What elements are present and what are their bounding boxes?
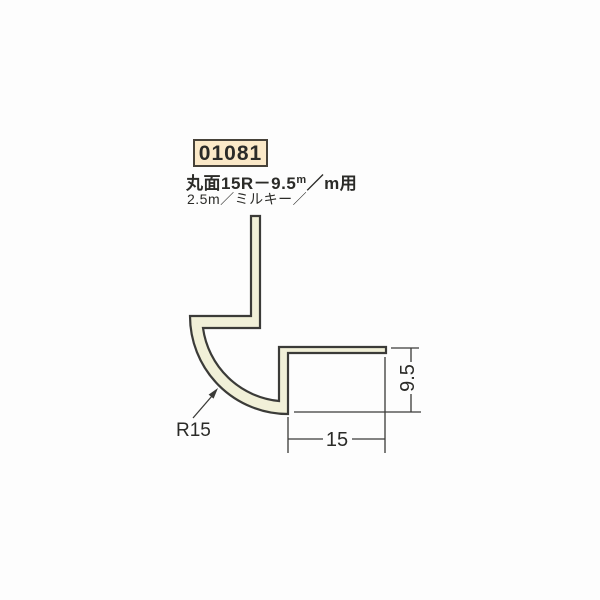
radius-arrow-line — [193, 396, 212, 418]
technical-drawing: 15 9.5 R15 — [0, 0, 600, 600]
dim-radius-label: R15 — [176, 420, 211, 441]
dim-radius: R15 — [176, 388, 218, 441]
dim-height: 9.5 — [294, 348, 421, 412]
catalog-page: 01081 丸面15R－9.5m／m用 2.5m／ミルキー／ 15 9.5 R1… — [0, 0, 600, 600]
profile-cross-section — [190, 216, 386, 414]
dim-width: 15 — [288, 357, 385, 453]
dim-height-label: 9.5 — [397, 364, 419, 392]
radius-arrow-head-icon — [209, 388, 218, 399]
dim-width-label: 15 — [326, 429, 348, 451]
